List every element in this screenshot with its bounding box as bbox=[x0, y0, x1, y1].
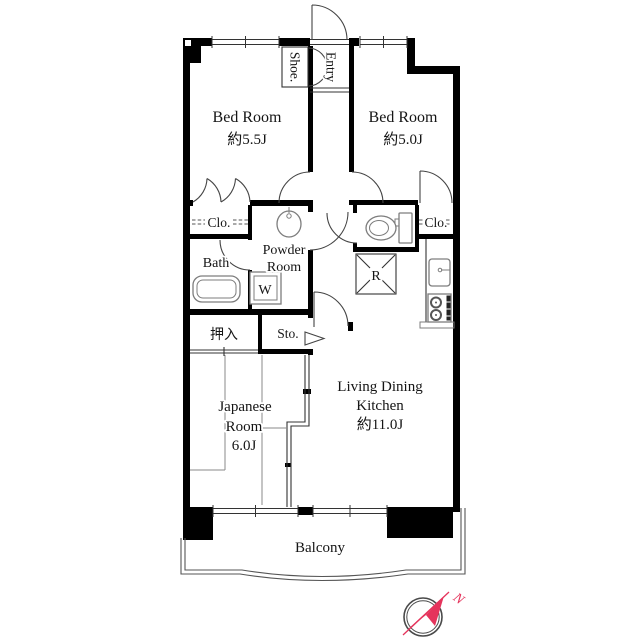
oshiire-fusuma-doors bbox=[190, 347, 258, 356]
stove-icon bbox=[428, 294, 451, 322]
window-bedroom-right bbox=[360, 36, 407, 48]
wall-corridor-left-1 bbox=[308, 46, 313, 172]
floor-plan-drawing: N Bed Room 約5.5J Bed Room 約5.0J Shoe. En… bbox=[0, 0, 640, 640]
wall-powder-left-a bbox=[248, 205, 252, 240]
labels: Bed Room 約5.5J Bed Room 約5.0J Shoe. Entr… bbox=[203, 52, 448, 556]
wall-toilet-right bbox=[415, 205, 419, 250]
wall-corridor-left-3 bbox=[308, 250, 313, 318]
label-balcony: Balcony bbox=[295, 540, 345, 556]
wall-bottom-left-chunk bbox=[183, 507, 213, 540]
wall-bottom-pier bbox=[298, 507, 313, 515]
wall-top-right-horiz bbox=[407, 66, 460, 74]
label-oshiire: 押入 bbox=[210, 327, 238, 343]
wall-left-outer bbox=[183, 38, 190, 512]
label-closet-left: Clo. bbox=[208, 215, 231, 230]
label-bath: Bath bbox=[203, 256, 229, 271]
wall-corridor-right bbox=[349, 46, 354, 172]
label-powder-line1: Powder bbox=[263, 243, 306, 258]
storage-arrow bbox=[305, 332, 324, 345]
counter-ledge bbox=[420, 322, 454, 328]
hall-ldk-door-arc bbox=[314, 292, 348, 327]
wall-closet-left-bottom bbox=[183, 234, 250, 239]
wall-hall-door-jamb bbox=[348, 322, 353, 331]
toilet-icon bbox=[366, 213, 412, 243]
wall-corner-notch bbox=[185, 40, 191, 46]
label-entry: Entry bbox=[323, 52, 338, 82]
entry-threshold bbox=[310, 40, 349, 45]
wall-bottom-right-chunk bbox=[387, 507, 453, 538]
entry-door-arc bbox=[312, 5, 347, 40]
wall-mid-band bbox=[183, 309, 313, 315]
partition-japanese-ldk-inner bbox=[291, 355, 309, 507]
wall-toilet-left-a bbox=[353, 205, 357, 213]
label-bedroom-right-name: Bed Room bbox=[369, 109, 438, 126]
floor-plan-page: N Bed Room 約5.5J Bed Room 約5.0J Shoe. En… bbox=[0, 0, 640, 640]
label-japanese-line2: Room bbox=[226, 419, 263, 435]
window-bedroom-left bbox=[212, 36, 279, 48]
label-japanese-size: 6.0J bbox=[232, 438, 257, 454]
bedroom-right-door-arc bbox=[352, 172, 383, 203]
label-powder-line2: Room bbox=[267, 260, 301, 275]
bedroom-left-door-arc bbox=[279, 172, 310, 203]
kitchen-sink-icon bbox=[429, 259, 450, 286]
wall-partition-center-tick bbox=[285, 463, 291, 467]
wall-corridor-left-2 bbox=[308, 203, 313, 212]
label-ldk-line2: Kitchen bbox=[356, 398, 404, 414]
label-ldk-size: 約11.0J bbox=[357, 416, 404, 433]
wall-top-seg-b bbox=[279, 38, 310, 46]
wall-partition-tick bbox=[303, 389, 311, 394]
closet-left-doors bbox=[193, 179, 250, 203]
label-japanese-line1: Japanese bbox=[218, 399, 272, 415]
wall-top-seg-a bbox=[190, 38, 212, 46]
label-bedroom-left-size: 約5.5J bbox=[227, 131, 267, 148]
wall-oshiire-right bbox=[258, 315, 262, 349]
wall-bedroom1-bottom-a bbox=[183, 200, 193, 206]
toilet-door-arc bbox=[327, 213, 357, 243]
label-refrigerator: R bbox=[371, 269, 381, 284]
label-ldk-line1: Living Dining bbox=[337, 379, 423, 395]
closet-right-door-arc bbox=[420, 171, 452, 203]
wall-closet-right-bottom bbox=[418, 234, 453, 239]
powder-sink-icon bbox=[277, 207, 301, 237]
window-japanese-room bbox=[213, 505, 298, 517]
wall-toilet-bottom bbox=[353, 247, 419, 252]
label-bedroom-left-name: Bed Room bbox=[213, 109, 282, 126]
label-bedroom-right-size: 約5.0J bbox=[383, 131, 423, 148]
entry-step bbox=[310, 88, 349, 92]
wall-bedroom1-bottom-b bbox=[250, 200, 313, 206]
partition-japanese-ldk-outer bbox=[287, 355, 305, 507]
window-ldk bbox=[313, 505, 387, 517]
wall-top-seg-c bbox=[349, 38, 359, 46]
compass-icon: N bbox=[403, 590, 467, 636]
label-closet-right: Clo. bbox=[425, 215, 448, 230]
powder-room-door-arc bbox=[310, 212, 348, 250]
label-washer: W bbox=[258, 283, 272, 298]
wall-japanese-top bbox=[258, 349, 310, 354]
label-storage: Sto. bbox=[277, 326, 298, 341]
bathtub-icon bbox=[193, 276, 240, 302]
compass-north-label: N bbox=[449, 590, 467, 609]
label-shoe: Shoe. bbox=[287, 52, 302, 82]
wall-right-outer bbox=[453, 66, 460, 512]
